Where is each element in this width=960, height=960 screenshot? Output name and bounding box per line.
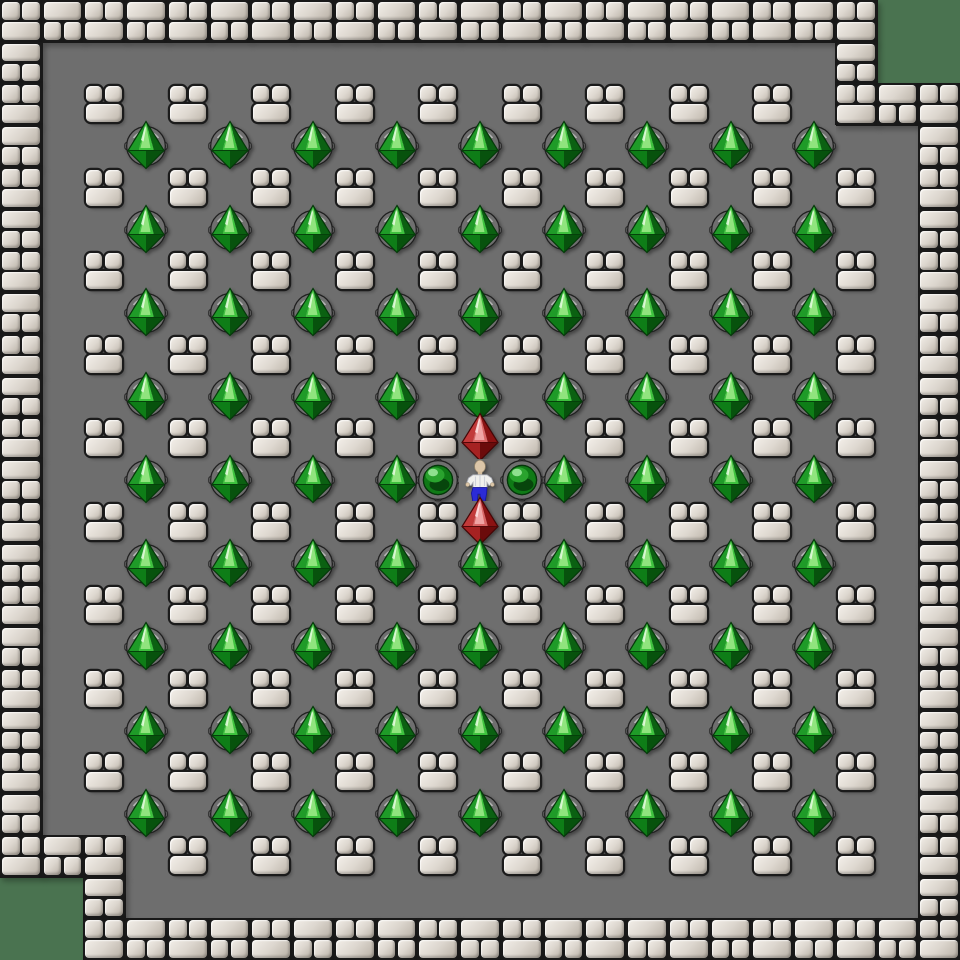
floor-tile[interactable] xyxy=(125,42,168,84)
floor-tile[interactable] xyxy=(209,42,251,84)
floor-tile[interactable] xyxy=(42,83,84,126)
emerald-on-socket[interactable] xyxy=(376,209,418,251)
floor-tile[interactable] xyxy=(668,793,711,836)
emerald-on-socket[interactable] xyxy=(125,626,168,669)
emerald-on-socket[interactable] xyxy=(626,125,669,168)
floor-tile[interactable] xyxy=(877,209,919,251)
brick xyxy=(22,231,40,249)
floor-tile[interactable] xyxy=(417,42,460,84)
floor-tile[interactable] xyxy=(501,376,544,418)
emerald-on-socket[interactable] xyxy=(626,209,669,251)
floor-tile[interactable] xyxy=(167,877,210,919)
floor-tile[interactable] xyxy=(376,835,418,878)
wall-block xyxy=(835,167,878,210)
wall-block xyxy=(584,584,627,627)
floor-tile[interactable] xyxy=(42,334,84,377)
floor-tile[interactable] xyxy=(501,877,544,919)
emerald-on-socket[interactable] xyxy=(793,209,836,251)
floor-tile[interactable] xyxy=(167,626,210,669)
floor-tile[interactable] xyxy=(417,710,460,752)
floor-tile[interactable] xyxy=(584,42,627,84)
floor-tile[interactable] xyxy=(584,877,627,919)
floor-tile[interactable] xyxy=(584,125,627,168)
floor-tile[interactable] xyxy=(877,376,919,418)
floor-tile[interactable] xyxy=(668,877,711,919)
floor-tile[interactable] xyxy=(42,125,84,168)
emerald-on-socket[interactable] xyxy=(459,710,502,752)
wall-brick xyxy=(417,0,460,43)
emerald-on-socket[interactable] xyxy=(376,626,418,669)
emerald-on-socket[interactable] xyxy=(793,459,836,502)
wall-brick xyxy=(918,376,960,418)
emerald-on-socket[interactable] xyxy=(793,543,836,585)
floor-tile[interactable] xyxy=(417,543,460,585)
floor-tile[interactable] xyxy=(83,42,126,84)
emerald-on-socket[interactable] xyxy=(710,292,752,335)
floor-tile[interactable] xyxy=(250,710,293,752)
emerald-on-socket[interactable] xyxy=(376,292,418,335)
floor-tile[interactable] xyxy=(42,668,84,711)
floor-tile[interactable] xyxy=(250,793,293,836)
emerald-on-socket[interactable] xyxy=(209,710,251,752)
floor-tile[interactable] xyxy=(334,209,377,251)
floor-tile[interactable] xyxy=(877,584,919,627)
floor-tile[interactable] xyxy=(42,501,84,544)
floor-tile[interactable] xyxy=(417,209,460,251)
emerald-on-socket[interactable] xyxy=(626,626,669,669)
emerald-on-socket[interactable] xyxy=(209,292,251,335)
floor-tile[interactable] xyxy=(668,710,711,752)
floor-tile[interactable] xyxy=(417,376,460,418)
floor-tile[interactable] xyxy=(250,459,293,502)
stone-block xyxy=(671,188,707,205)
emerald-on-socket[interactable] xyxy=(209,543,251,585)
wall-brick xyxy=(459,918,502,960)
floor-tile[interactable] xyxy=(751,125,794,168)
floor-tile[interactable] xyxy=(83,793,126,836)
floor-tile[interactable] xyxy=(751,292,794,335)
floor-tile[interactable] xyxy=(668,42,711,84)
emerald-on-socket[interactable] xyxy=(376,543,418,585)
emerald-on-socket[interactable] xyxy=(459,793,502,836)
emerald-on-socket[interactable] xyxy=(376,376,418,418)
floor-tile[interactable] xyxy=(835,710,878,752)
wall-block xyxy=(417,250,460,293)
floor-tile[interactable] xyxy=(835,376,878,418)
brick xyxy=(940,398,958,416)
floor-tile[interactable] xyxy=(501,292,544,335)
floor-tile[interactable] xyxy=(250,626,293,669)
floor-tile[interactable] xyxy=(250,376,293,418)
emerald-on-socket[interactable] xyxy=(125,793,168,836)
emerald-on-socket[interactable] xyxy=(710,376,752,418)
floor-tile[interactable] xyxy=(543,877,585,919)
floor-tile[interactable] xyxy=(83,292,126,335)
emerald-on-socket[interactable] xyxy=(292,125,335,168)
emerald-on-socket[interactable] xyxy=(125,459,168,502)
floor-tile[interactable] xyxy=(835,459,878,502)
emerald-on-socket[interactable] xyxy=(793,292,836,335)
floor-tile[interactable] xyxy=(751,209,794,251)
floor-tile[interactable] xyxy=(626,835,669,878)
floor-tile[interactable] xyxy=(417,292,460,335)
emerald-on-socket[interactable] xyxy=(543,793,585,836)
wall-block xyxy=(751,584,794,627)
wall-block xyxy=(751,751,794,794)
floor-tile[interactable] xyxy=(167,125,210,168)
emerald-on-socket[interactable] xyxy=(543,626,585,669)
emerald-on-socket[interactable] xyxy=(710,459,752,502)
wall-brick xyxy=(42,0,84,43)
brick xyxy=(648,940,666,958)
stone-block xyxy=(337,522,373,539)
floor-tile[interactable] xyxy=(376,877,418,919)
emerald-on-socket[interactable] xyxy=(543,209,585,251)
emerald-on-socket[interactable] xyxy=(376,710,418,752)
ball-on-socket[interactable] xyxy=(501,459,544,502)
floor-tile[interactable] xyxy=(250,543,293,585)
floor-tile[interactable] xyxy=(292,835,335,878)
emerald-icon xyxy=(791,704,837,756)
floor-tile[interactable] xyxy=(209,877,251,919)
emerald-on-socket[interactable] xyxy=(292,209,335,251)
floor-tile[interactable] xyxy=(877,626,919,669)
brick xyxy=(920,773,959,791)
emerald-on-socket[interactable] xyxy=(376,793,418,836)
floor-tile[interactable] xyxy=(459,835,502,878)
emerald-on-socket[interactable] xyxy=(459,125,502,168)
floor-tile[interactable] xyxy=(125,835,168,878)
floor-tile[interactable] xyxy=(751,376,794,418)
floor-tile[interactable] xyxy=(459,877,502,919)
floor-tile[interactable] xyxy=(877,751,919,794)
floor-tile[interactable] xyxy=(877,417,919,460)
floor-tile[interactable] xyxy=(877,793,919,836)
stone-block xyxy=(420,337,436,353)
floor-tile[interactable] xyxy=(376,42,418,84)
floor-tile[interactable] xyxy=(877,710,919,752)
emerald-on-socket[interactable] xyxy=(125,543,168,585)
floor-tile[interactable] xyxy=(334,125,377,168)
floor-tile[interactable] xyxy=(125,877,168,919)
brick xyxy=(690,920,708,938)
emerald-on-socket[interactable] xyxy=(626,292,669,335)
emerald-on-socket[interactable] xyxy=(459,209,502,251)
floor-tile[interactable] xyxy=(292,877,335,919)
floor-tile[interactable] xyxy=(417,626,460,669)
floor-tile[interactable] xyxy=(877,459,919,502)
floor-tile[interactable] xyxy=(42,250,84,293)
floor-tile[interactable] xyxy=(835,877,878,919)
emerald-icon xyxy=(624,119,670,171)
floor-tile[interactable] xyxy=(250,125,293,168)
emerald-on-socket[interactable] xyxy=(626,459,669,502)
emerald-on-socket[interactable] xyxy=(376,125,418,168)
floor-tile[interactable] xyxy=(668,626,711,669)
floor-tile[interactable] xyxy=(42,209,84,251)
floor-tile[interactable] xyxy=(877,250,919,293)
floor-tile[interactable] xyxy=(626,42,669,84)
floor-tile[interactable] xyxy=(877,292,919,335)
emerald-on-socket[interactable] xyxy=(125,292,168,335)
stone-block xyxy=(253,504,269,520)
floor-tile[interactable] xyxy=(42,42,84,84)
floor-tile[interactable] xyxy=(584,376,627,418)
floor-tile[interactable] xyxy=(751,543,794,585)
floor-tile[interactable] xyxy=(417,793,460,836)
brick xyxy=(837,105,876,123)
emerald-on-socket[interactable] xyxy=(125,376,168,418)
emerald-on-socket[interactable] xyxy=(292,543,335,585)
emerald-on-socket[interactable] xyxy=(543,710,585,752)
floor-tile[interactable] xyxy=(334,710,377,752)
floor-tile[interactable] xyxy=(793,877,836,919)
floor-tile[interactable] xyxy=(501,710,544,752)
floor-tile[interactable] xyxy=(584,710,627,752)
floor-tile[interactable] xyxy=(501,125,544,168)
emerald-on-socket[interactable] xyxy=(459,292,502,335)
emerald-on-socket[interactable] xyxy=(543,376,585,418)
floor-tile[interactable] xyxy=(668,543,711,585)
floor-tile[interactable] xyxy=(793,42,836,84)
brick xyxy=(712,22,730,40)
wall-brick xyxy=(0,584,43,627)
floor-tile[interactable] xyxy=(83,209,126,251)
floor-tile[interactable] xyxy=(835,793,878,836)
floor-tile[interactable] xyxy=(83,710,126,752)
floor-tile[interactable] xyxy=(877,877,919,919)
floor-tile[interactable] xyxy=(334,793,377,836)
floor-tile[interactable] xyxy=(668,292,711,335)
emerald-on-socket[interactable] xyxy=(209,376,251,418)
floor-tile[interactable] xyxy=(835,292,878,335)
floor-tile[interactable] xyxy=(42,793,84,836)
floor-tile[interactable] xyxy=(167,292,210,335)
emerald-on-socket[interactable] xyxy=(793,376,836,418)
emerald-on-socket[interactable] xyxy=(376,459,418,502)
wall-block xyxy=(250,334,293,377)
stone-block xyxy=(356,671,373,687)
floor-tile[interactable] xyxy=(334,626,377,669)
floor-tile[interactable] xyxy=(83,459,126,502)
floor-tile[interactable] xyxy=(250,292,293,335)
emerald-on-socket[interactable] xyxy=(459,543,502,585)
floor-tile[interactable] xyxy=(42,459,84,502)
floor-tile[interactable] xyxy=(584,459,627,502)
floor-tile[interactable] xyxy=(626,877,669,919)
emerald-on-socket[interactable] xyxy=(209,793,251,836)
floor-tile[interactable] xyxy=(877,167,919,210)
brick xyxy=(795,940,813,958)
floor-tile[interactable] xyxy=(501,543,544,585)
brick xyxy=(940,169,958,187)
emerald-on-socket[interactable] xyxy=(209,125,251,168)
floor-tile[interactable] xyxy=(543,42,585,84)
floor-tile[interactable] xyxy=(334,292,377,335)
wall-brick xyxy=(0,626,43,669)
floor-tile[interactable] xyxy=(835,125,878,168)
floor-tile[interactable] xyxy=(501,793,544,836)
floor-tile[interactable] xyxy=(751,793,794,836)
emerald-on-socket[interactable] xyxy=(292,376,335,418)
stone-block xyxy=(671,754,687,770)
floor-tile[interactable] xyxy=(42,292,84,335)
floor-tile[interactable] xyxy=(877,668,919,711)
floor-tile[interactable] xyxy=(334,42,377,84)
emerald-on-socket[interactable] xyxy=(626,793,669,836)
floor-tile[interactable] xyxy=(167,42,210,84)
emerald-on-socket[interactable] xyxy=(793,125,836,168)
emerald-on-socket[interactable] xyxy=(710,125,752,168)
emerald-icon xyxy=(457,203,503,255)
floor-tile[interactable] xyxy=(334,459,377,502)
floor-tile[interactable] xyxy=(835,626,878,669)
floor-tile[interactable] xyxy=(42,710,84,752)
emerald-on-socket[interactable] xyxy=(793,626,836,669)
floor-tile[interactable] xyxy=(42,417,84,460)
floor-tile[interactable] xyxy=(793,835,836,878)
wall-block xyxy=(417,501,460,544)
stone-block xyxy=(337,605,373,622)
emerald-on-socket[interactable] xyxy=(292,710,335,752)
floor-tile[interactable] xyxy=(584,209,627,251)
emerald-on-socket[interactable] xyxy=(626,710,669,752)
floor-tile[interactable] xyxy=(668,459,711,502)
stone-block xyxy=(754,104,790,121)
emerald-on-socket[interactable] xyxy=(543,125,585,168)
floor-tile[interactable] xyxy=(83,626,126,669)
emerald-on-socket[interactable] xyxy=(292,793,335,836)
stone-block xyxy=(86,671,102,687)
emerald-on-socket[interactable] xyxy=(543,543,585,585)
floor-tile[interactable] xyxy=(459,42,502,84)
floor-tile[interactable] xyxy=(83,543,126,585)
emerald-on-socket[interactable] xyxy=(292,292,335,335)
floor-tile[interactable] xyxy=(751,42,794,84)
emerald-on-socket[interactable] xyxy=(710,626,752,669)
floor-tile[interactable] xyxy=(501,209,544,251)
emerald-on-socket[interactable] xyxy=(710,543,752,585)
emerald-on-socket[interactable] xyxy=(125,125,168,168)
floor-tile[interactable] xyxy=(42,376,84,418)
floor-tile[interactable] xyxy=(417,125,460,168)
floor-tile[interactable] xyxy=(710,877,752,919)
floor-tile[interactable] xyxy=(83,125,126,168)
floor-tile[interactable] xyxy=(751,710,794,752)
floor-tile[interactable] xyxy=(584,793,627,836)
emerald-on-socket[interactable] xyxy=(292,459,335,502)
emerald-on-socket[interactable] xyxy=(710,209,752,251)
stone-block xyxy=(170,689,206,706)
floor-tile[interactable] xyxy=(167,710,210,752)
emerald-on-socket[interactable] xyxy=(626,376,669,418)
floor-tile[interactable] xyxy=(83,376,126,418)
floor-tile[interactable] xyxy=(417,877,460,919)
emerald-on-socket[interactable] xyxy=(209,459,251,502)
floor-tile[interactable] xyxy=(250,209,293,251)
game-board[interactable] xyxy=(0,0,960,960)
emerald-on-socket[interactable] xyxy=(710,793,752,836)
floor-tile[interactable] xyxy=(42,626,84,669)
emerald-icon xyxy=(374,286,420,338)
floor-tile[interactable] xyxy=(751,459,794,502)
floor-tile[interactable] xyxy=(42,751,84,794)
floor-tile[interactable] xyxy=(751,626,794,669)
emerald-on-socket[interactable] xyxy=(793,710,836,752)
floor-tile[interactable] xyxy=(877,501,919,544)
floor-tile[interactable] xyxy=(877,334,919,377)
floor-tile[interactable] xyxy=(668,376,711,418)
wall-block xyxy=(835,751,878,794)
floor-tile[interactable] xyxy=(584,626,627,669)
emerald-on-socket[interactable] xyxy=(292,626,335,669)
stone-block xyxy=(105,420,122,436)
brick xyxy=(2,628,41,646)
stone-block xyxy=(671,86,687,102)
floor-tile[interactable] xyxy=(42,167,84,210)
floor-tile[interactable] xyxy=(543,835,585,878)
floor-tile[interactable] xyxy=(710,42,752,84)
floor-tile[interactable] xyxy=(501,42,544,84)
emerald-on-socket[interactable] xyxy=(543,459,585,502)
floor-tile[interactable] xyxy=(710,835,752,878)
ball-on-socket[interactable] xyxy=(417,459,460,502)
floor-tile[interactable] xyxy=(877,835,919,878)
stone-block xyxy=(189,671,206,687)
floor-tile[interactable] xyxy=(584,292,627,335)
floor-tile[interactable] xyxy=(42,584,84,627)
floor-tile[interactable] xyxy=(334,543,377,585)
floor-tile[interactable] xyxy=(167,793,210,836)
emerald-icon xyxy=(624,203,670,255)
floor-tile[interactable] xyxy=(167,543,210,585)
floor-tile[interactable] xyxy=(250,877,293,919)
stone-block xyxy=(337,271,373,288)
floor-tile[interactable] xyxy=(835,209,878,251)
emerald-on-socket[interactable] xyxy=(209,626,251,669)
floor-tile[interactable] xyxy=(42,543,84,585)
brick xyxy=(940,565,958,583)
floor-tile[interactable] xyxy=(584,543,627,585)
emerald-on-socket[interactable] xyxy=(626,543,669,585)
floor-tile[interactable] xyxy=(292,42,335,84)
emerald-on-socket[interactable] xyxy=(793,793,836,836)
stone-block xyxy=(420,188,456,205)
floor-tile[interactable] xyxy=(167,209,210,251)
stone-block xyxy=(671,522,707,539)
emerald-on-socket[interactable] xyxy=(459,626,502,669)
floor-tile[interactable] xyxy=(668,209,711,251)
emerald-on-socket[interactable] xyxy=(125,710,168,752)
floor-tile[interactable] xyxy=(877,543,919,585)
floor-tile[interactable] xyxy=(167,459,210,502)
brick xyxy=(837,920,855,938)
floor-tile[interactable] xyxy=(835,543,878,585)
floor-tile[interactable] xyxy=(334,376,377,418)
emerald-on-socket[interactable] xyxy=(710,710,752,752)
floor-tile[interactable] xyxy=(250,42,293,84)
floor-tile[interactable] xyxy=(751,877,794,919)
floor-tile[interactable] xyxy=(668,125,711,168)
floor-tile[interactable] xyxy=(209,835,251,878)
floor-tile[interactable] xyxy=(334,877,377,919)
floor-tile[interactable] xyxy=(501,626,544,669)
floor-tile[interactable] xyxy=(877,125,919,168)
floor-tile[interactable] xyxy=(167,376,210,418)
emerald-on-socket[interactable] xyxy=(543,292,585,335)
emerald-on-socket[interactable] xyxy=(125,209,168,251)
emerald-on-socket[interactable] xyxy=(209,209,251,251)
